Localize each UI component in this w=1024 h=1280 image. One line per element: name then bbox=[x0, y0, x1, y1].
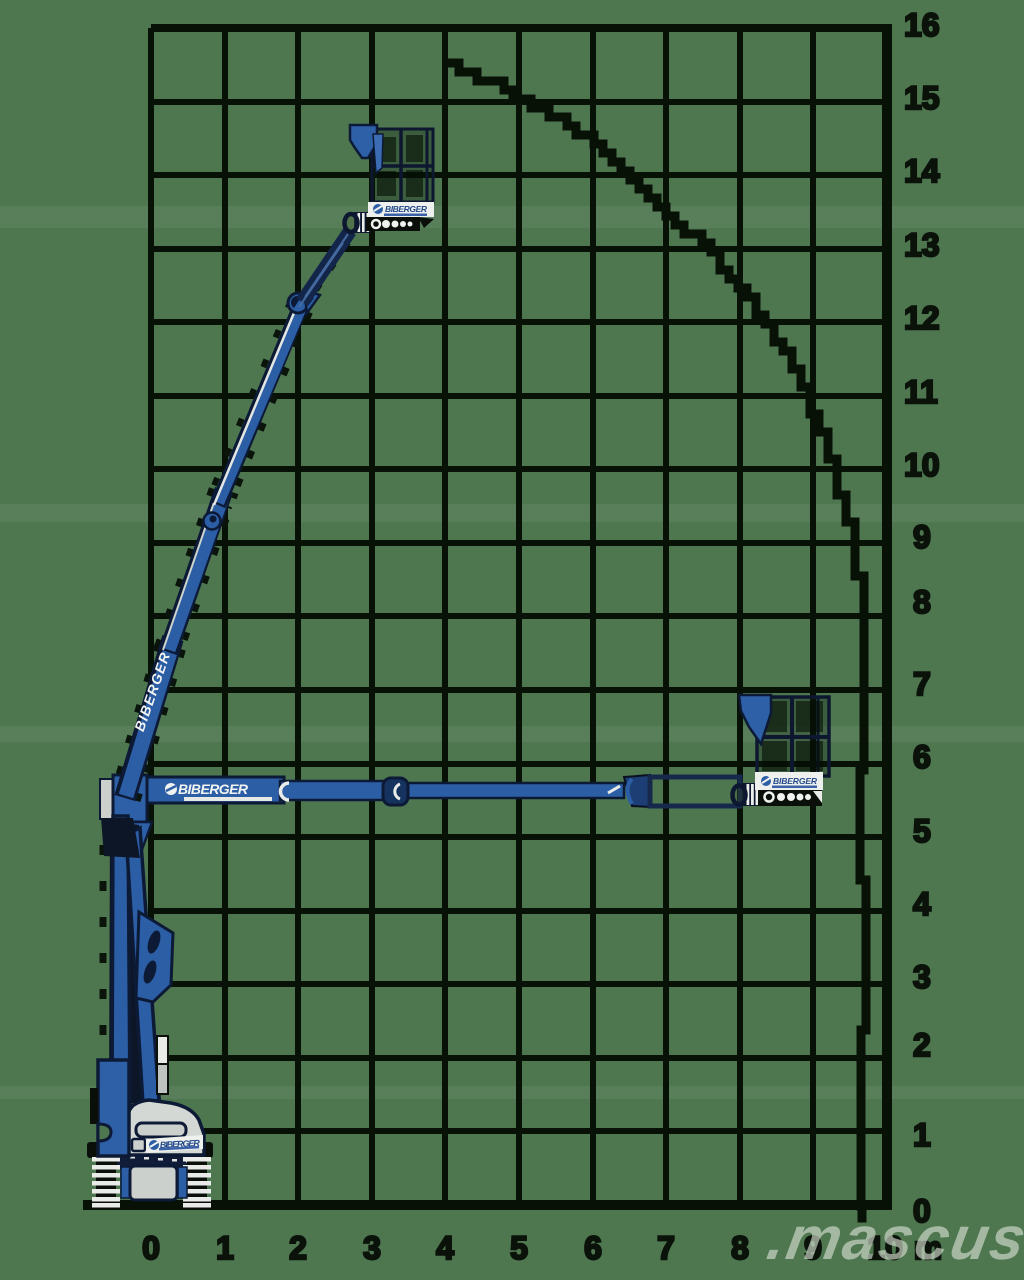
svg-text:5: 5 bbox=[510, 1230, 528, 1266]
svg-text:1: 1 bbox=[913, 1117, 931, 1153]
svg-text:14: 14 bbox=[904, 153, 940, 189]
svg-text:9: 9 bbox=[913, 519, 931, 555]
svg-text:3: 3 bbox=[363, 1230, 381, 1266]
svg-text:BIBERGER: BIBERGER bbox=[385, 204, 428, 214]
svg-text:7: 7 bbox=[657, 1230, 675, 1266]
svg-text:6: 6 bbox=[913, 739, 931, 775]
svg-text:3: 3 bbox=[913, 959, 931, 995]
svg-text:5: 5 bbox=[913, 813, 931, 849]
svg-text:11: 11 bbox=[904, 374, 938, 410]
svg-text:12: 12 bbox=[904, 300, 940, 336]
svg-text:13: 13 bbox=[904, 227, 940, 263]
svg-text:1: 1 bbox=[216, 1230, 234, 1266]
svg-text:7: 7 bbox=[913, 666, 931, 702]
svg-text:8: 8 bbox=[731, 1230, 749, 1266]
svg-text:4: 4 bbox=[913, 886, 931, 922]
svg-text:2: 2 bbox=[913, 1027, 931, 1063]
svg-text:.mascus: .mascus bbox=[762, 1204, 1024, 1272]
svg-text:8: 8 bbox=[913, 584, 931, 620]
svg-text:BIBERGER: BIBERGER bbox=[178, 781, 249, 797]
svg-text:4: 4 bbox=[436, 1230, 454, 1266]
svg-text:16: 16 bbox=[904, 7, 940, 43]
svg-text:0: 0 bbox=[142, 1230, 160, 1266]
svg-text:6: 6 bbox=[584, 1230, 602, 1266]
svg-text:2: 2 bbox=[289, 1230, 307, 1266]
svg-text:15: 15 bbox=[904, 80, 940, 116]
svg-text:10: 10 bbox=[904, 447, 940, 483]
svg-text:BIBERGER: BIBERGER bbox=[773, 776, 818, 786]
